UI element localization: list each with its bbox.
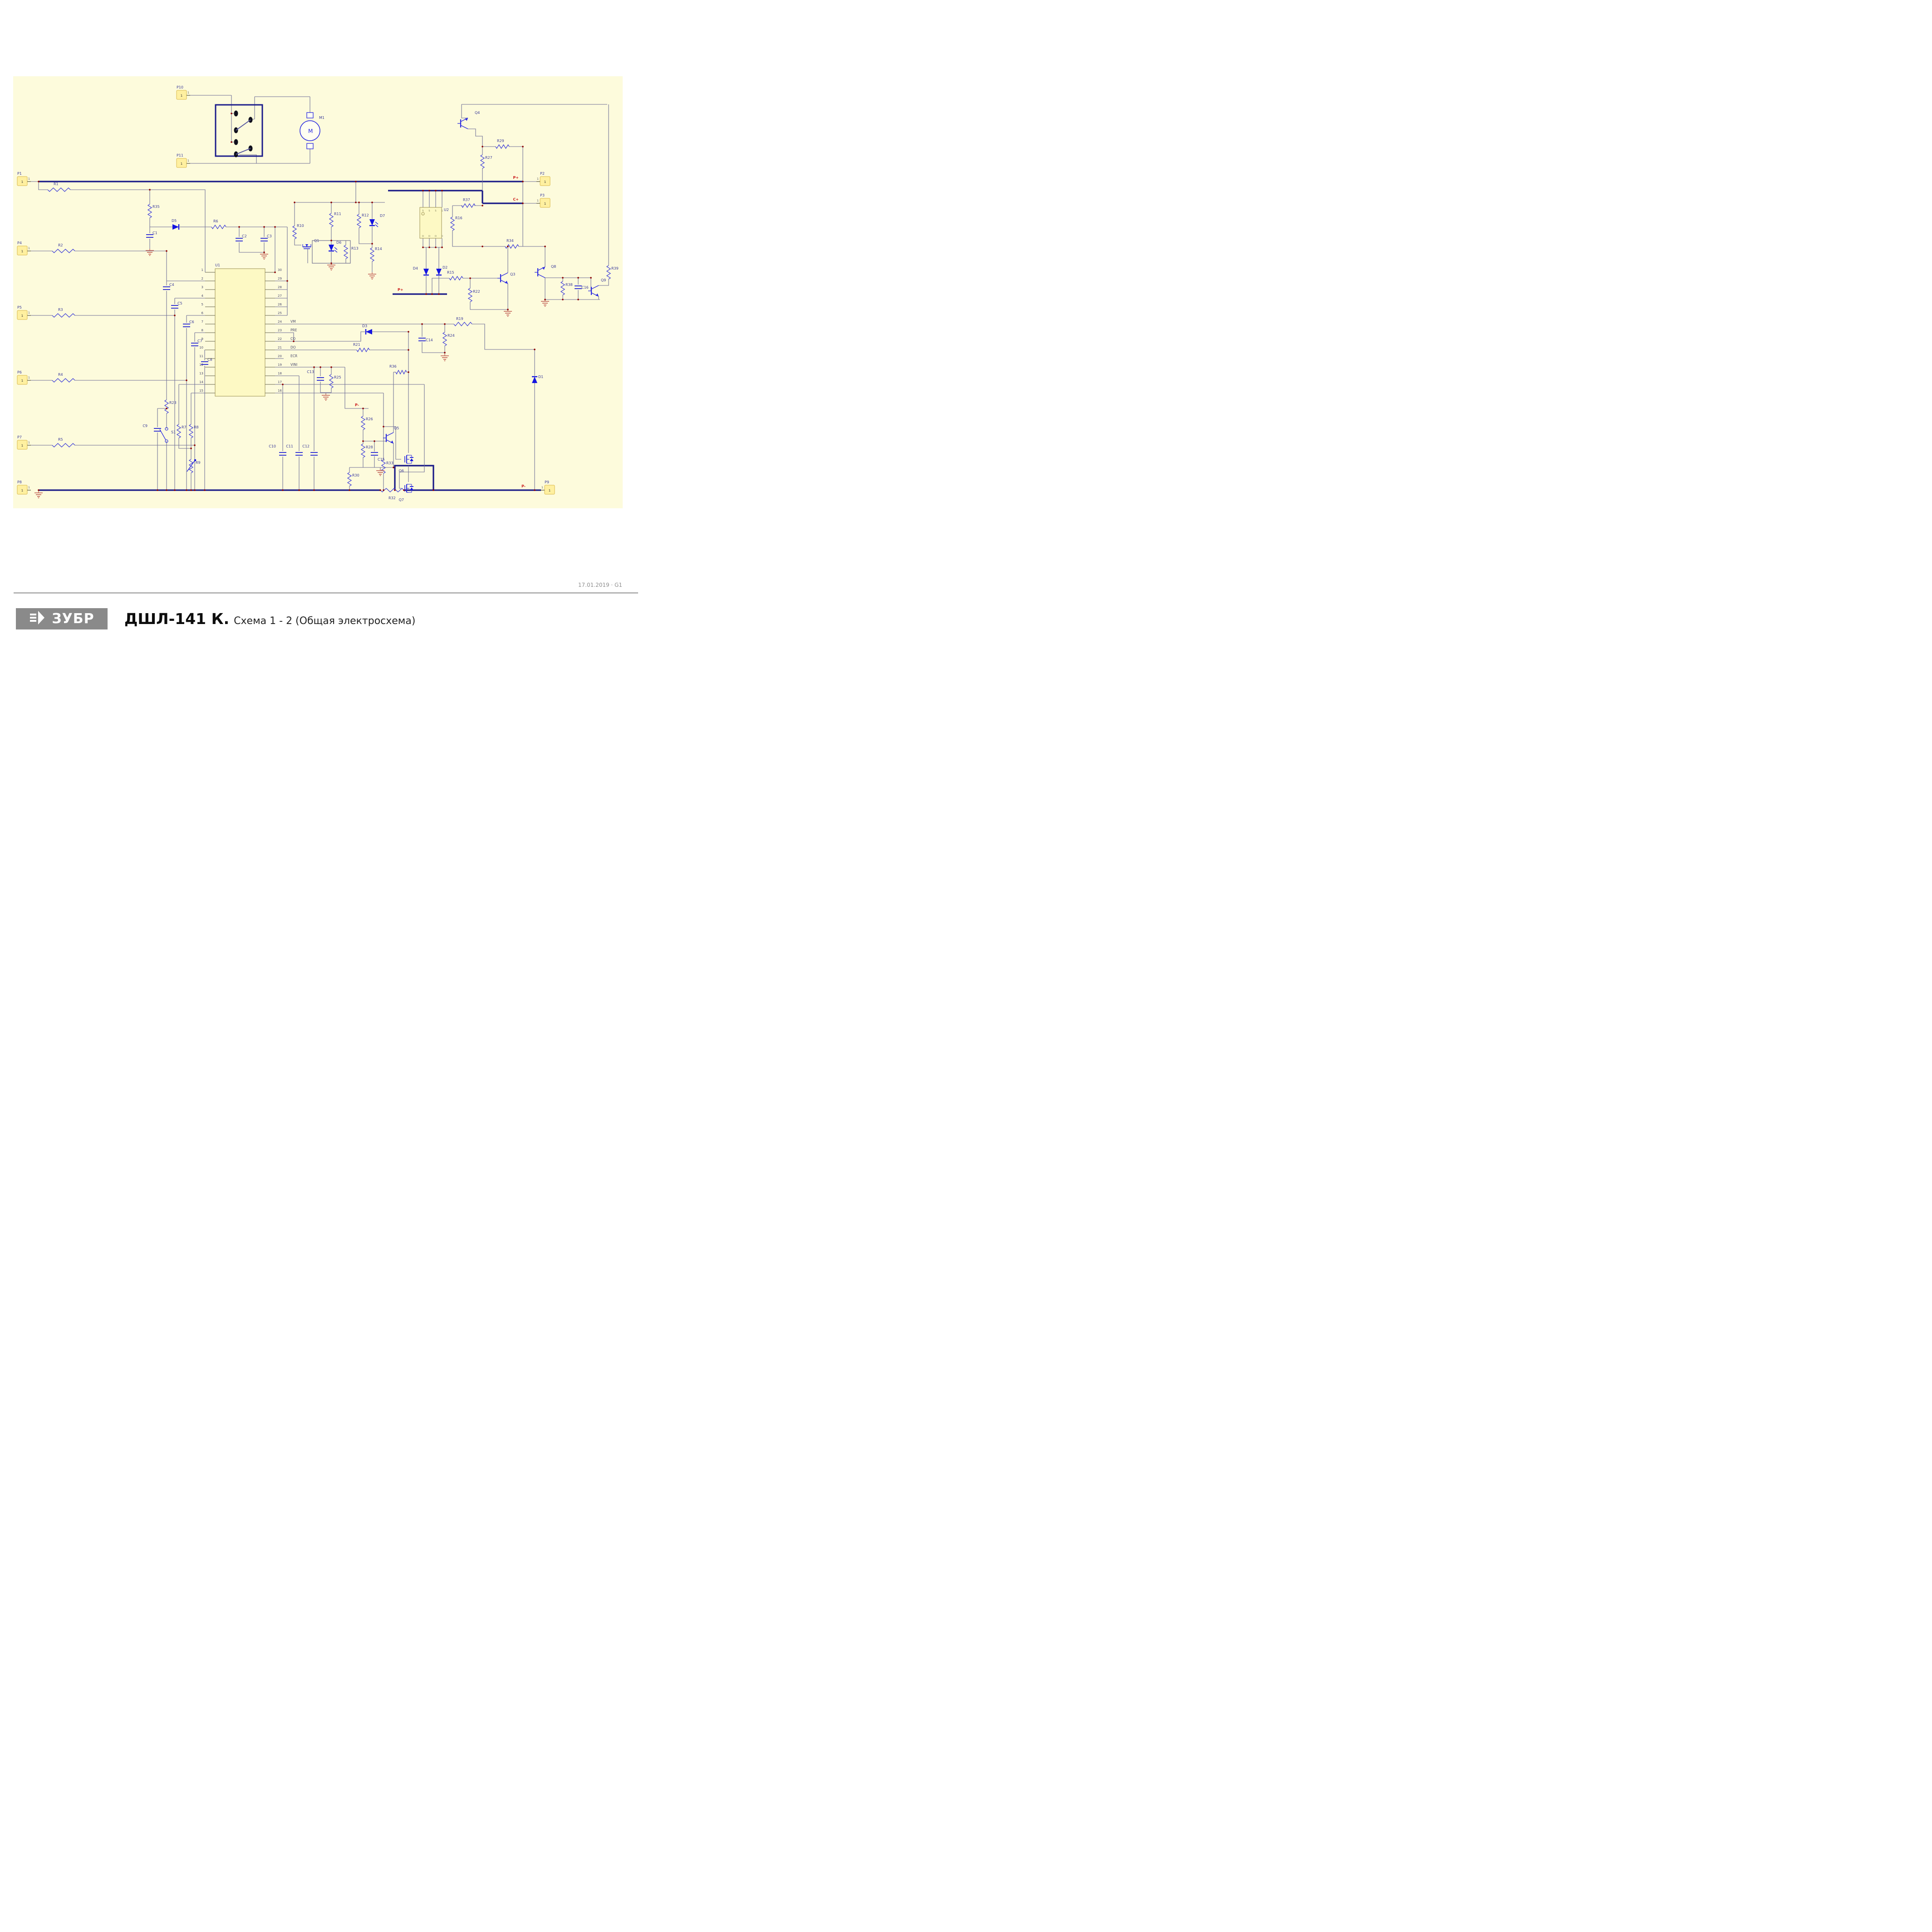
junction-dot <box>263 226 265 228</box>
ic-pin-number: 18 <box>278 372 282 375</box>
junction-dot <box>174 489 176 491</box>
junction-dot <box>166 408 167 409</box>
resistor-label: R13 <box>351 246 359 251</box>
junction-dot <box>186 379 187 381</box>
resistor-label: R35 <box>152 205 160 209</box>
junction-dot <box>441 246 443 248</box>
junction-dot <box>355 181 357 182</box>
capacitor-label: C2 <box>242 234 247 238</box>
motor-label: M1 <box>319 116 324 120</box>
ic-pin-name: D <box>441 235 443 238</box>
junction-dot <box>444 323 446 325</box>
capacitor-label: C13 <box>307 370 314 374</box>
connector-label: P3 <box>540 193 545 197</box>
resistor-label: R10 <box>297 224 304 228</box>
resistor-label: R16 <box>455 216 462 220</box>
junction-dot <box>294 202 295 203</box>
ic-pin-number: 5 <box>202 303 203 306</box>
power-net-label: P- <box>521 484 526 488</box>
junction-dot <box>408 331 409 333</box>
resistor-label: R34 <box>506 239 514 243</box>
junction-dot <box>421 323 423 325</box>
ic-pin-name: D <box>422 235 424 238</box>
junction-dot <box>403 489 405 491</box>
junction-dot <box>431 293 433 295</box>
ic-pin-name: CO <box>290 337 295 341</box>
junction-dot <box>383 426 384 428</box>
junction-dot <box>534 349 536 350</box>
ic-pin-number: 26 <box>278 303 282 306</box>
junction-dot <box>441 190 443 192</box>
diode-label: D3 <box>362 324 367 328</box>
doc-subtitle: Схема 1 - 2 (Общая электросхема) <box>234 615 415 627</box>
capacitor-label: C1 <box>152 231 157 235</box>
resistor-label: R22 <box>473 290 480 294</box>
ic-pin-number: 10 <box>199 346 203 349</box>
ic-pin-number: 13 <box>199 372 203 375</box>
capacitor-label: C4 <box>169 283 174 287</box>
ic-pin-number: 4 <box>202 294 204 298</box>
capacitor-label: C8 <box>207 358 212 362</box>
junction-dot <box>394 489 396 491</box>
connector-label: P4 <box>17 241 22 245</box>
junction-dot <box>190 447 192 449</box>
ic-pin-number: 17 <box>278 380 282 384</box>
junction-dot <box>435 190 437 192</box>
connector-pin-number: 1 <box>549 489 551 492</box>
capacitor-label: C3 <box>267 234 272 238</box>
junction-dot <box>313 489 315 491</box>
junction-dot <box>522 146 524 147</box>
ic-pin-number: 21 <box>278 346 282 349</box>
connector-pin-number: 1 <box>21 250 23 253</box>
brand-arrow-icon <box>29 610 50 628</box>
connector-pin-number: 1 <box>544 202 546 206</box>
connector-label: P9 <box>545 480 549 484</box>
junction-dot <box>422 190 424 192</box>
power-net-label: P+ <box>398 288 403 292</box>
transistor-label: Q3 <box>510 272 515 276</box>
junction-dot <box>408 371 409 373</box>
connector-label: P7 <box>17 435 22 439</box>
junction-dot <box>204 489 206 491</box>
junction-dot <box>438 293 440 295</box>
junction-dot <box>38 181 39 182</box>
ic-pin-number: 19 <box>278 363 282 367</box>
ic-pin-number: 16 <box>278 389 282 393</box>
ic-pin-name: VINI <box>290 363 297 367</box>
junction-dot <box>408 349 409 351</box>
junction-dot <box>194 489 196 491</box>
diode-label: D4 <box>413 266 418 270</box>
junction-dot <box>362 408 364 409</box>
connector-pin-number: 1 <box>21 379 23 383</box>
resistor-label: R15 <box>447 270 454 275</box>
resistor-label: R26 <box>366 417 373 421</box>
resistor-label: R4 <box>58 373 63 377</box>
motor-terminal <box>307 113 313 118</box>
diode-label: D2 <box>442 265 447 270</box>
junction-dot <box>274 271 276 273</box>
ic-pin-name: S <box>428 210 430 212</box>
junction-dot <box>522 202 524 204</box>
resistor-label: R21 <box>353 343 360 347</box>
ic-pin-number: 1 <box>202 268 203 272</box>
junction-dot <box>190 489 192 491</box>
ic-pin-number: 3 <box>202 285 203 289</box>
junction-dot <box>534 489 536 491</box>
junction-dot <box>544 246 546 247</box>
junction-dot <box>330 202 332 203</box>
junction-dot <box>590 277 592 279</box>
ic-pin-number: 6 <box>202 311 204 315</box>
junction-dot <box>231 141 232 143</box>
transistor-label: Q9 <box>601 278 606 282</box>
resistor-label: R7 <box>182 425 187 429</box>
connector-stub-pin: 1 <box>537 177 539 181</box>
junction-dot <box>149 189 151 191</box>
junction-dot <box>371 243 373 245</box>
ic-pin-name: S <box>435 210 436 212</box>
resistor-label: R29 <box>497 139 504 143</box>
diode-label: D7 <box>380 214 385 218</box>
ic-pin-number: 28 <box>278 285 282 289</box>
resistor-label: R36 <box>389 364 397 369</box>
ic-pin-name: VM <box>290 320 296 324</box>
capacitor-label: C15 <box>378 457 385 462</box>
junction-dot <box>444 352 446 354</box>
resistor-label: R11 <box>334 212 341 216</box>
ic-pin-number: 11 <box>199 354 203 358</box>
diode-label: D1 <box>538 375 543 379</box>
capacitor-label: C10 <box>269 444 276 448</box>
junction-dot <box>238 226 240 228</box>
power-net-label: C+ <box>513 197 519 202</box>
junction-dot <box>433 489 434 491</box>
ic-pin-name: DO <box>290 345 296 349</box>
junction-dot <box>293 340 295 342</box>
capacitor-label: C11 <box>286 444 293 448</box>
connector-stub-pin: 1 <box>28 376 30 379</box>
junction-dot <box>330 366 332 368</box>
resistor-label: R2 <box>58 243 63 247</box>
junction-dot <box>320 366 321 368</box>
resistor-label: R32 <box>388 496 396 500</box>
junction-dot <box>355 202 357 203</box>
resistor-label: R25 <box>334 375 341 379</box>
junction-dot <box>469 277 471 279</box>
ic-pin-name: S <box>422 210 423 212</box>
ic-body <box>215 269 265 396</box>
ic-pin-number: 7 <box>202 320 203 324</box>
resistor-label: R14 <box>375 247 382 251</box>
junction-dot <box>282 489 284 491</box>
connector-label: P2 <box>540 172 545 176</box>
capacitor-label: C12 <box>302 444 310 448</box>
ic-pin-number: 15 <box>199 389 203 393</box>
ic-label: U1 <box>215 263 220 267</box>
resistor-label: R3 <box>58 308 63 312</box>
resistor-label: R39 <box>611 266 619 270</box>
capacitor-label: C6 <box>189 320 194 324</box>
junction-dot <box>274 226 276 228</box>
switch-label: S1 <box>171 430 176 434</box>
connector-label: P1 <box>17 172 22 176</box>
connector-pin-number: 1 <box>21 314 23 318</box>
junction-dot <box>482 205 483 206</box>
resistor-label: R19 <box>456 317 463 321</box>
connector-pin-number: 1 <box>21 444 23 447</box>
footer: ЗУБР ДШЛ-141 К. Схема 1 - 2 (Общая элект… <box>16 608 415 629</box>
junction-dot <box>371 202 373 203</box>
junction-dot <box>362 440 364 442</box>
ic-pin-name: D <box>428 235 430 238</box>
junction-dot <box>374 440 375 442</box>
connector-label: P10 <box>177 85 183 89</box>
resistor-label: R5 <box>58 438 63 442</box>
connector-pin-number: 1 <box>21 180 23 184</box>
connector-stub-pin: 1 <box>28 177 30 181</box>
connector-stub-pin: 1 <box>28 246 30 250</box>
connector-pin-number: 1 <box>181 162 182 166</box>
doc-title: ДШЛ-141 К. <box>124 610 229 628</box>
connector-stub-pin: 1 <box>187 91 189 94</box>
resistor-label: R27 <box>485 156 492 160</box>
resistor-label: R8 <box>194 425 199 429</box>
resistor-label: R1 <box>54 182 59 186</box>
ic-pin-name: D <box>435 235 437 238</box>
schematic-canvas: P111P411P511P611P711P811P1011P1111P211P3… <box>0 0 644 644</box>
connector-pin-number: 1 <box>181 94 182 98</box>
connector-label: P11 <box>177 153 183 157</box>
junction-dot <box>577 277 579 279</box>
ic-pin-number: 12 <box>199 363 203 367</box>
page: P111P411P511P611P711P811P1011P1111P211P3… <box>0 0 644 644</box>
connector-stub-pin: 1 <box>537 199 539 202</box>
capacitor-label: C16 <box>581 285 589 290</box>
ic-pin-name: G <box>441 210 443 212</box>
switch-contact <box>234 139 238 145</box>
junction-dot <box>507 246 509 247</box>
junction-dot <box>544 299 546 300</box>
ic-U1 <box>205 269 275 396</box>
motor-terminal <box>307 143 313 149</box>
ic-pin-number: 20 <box>278 354 282 358</box>
resistor-label: R6 <box>213 219 218 223</box>
resistor-label: R12 <box>362 213 369 217</box>
junction-dot <box>282 383 284 385</box>
junction-dot <box>383 489 384 491</box>
connector-label: P5 <box>17 305 22 310</box>
junction-dot <box>349 489 350 491</box>
junction-dot <box>562 299 564 300</box>
junction-dot <box>231 113 232 114</box>
power-net-label: P+ <box>513 176 519 180</box>
diode-label: D6 <box>336 241 341 245</box>
ic-pin-number: 23 <box>278 329 282 332</box>
resistor-label: R9 <box>196 461 201 465</box>
junction-dot <box>522 181 524 182</box>
junction-dot <box>174 315 176 316</box>
junction-dot <box>422 246 424 248</box>
connector-pin-number: 1 <box>544 180 546 184</box>
switch-contact <box>234 111 238 117</box>
ic-pin-number: 24 <box>278 320 282 324</box>
footer-rule <box>14 593 638 593</box>
brand-logo: ЗУБР <box>16 608 108 629</box>
junction-dot <box>577 299 579 300</box>
diode-label: D5 <box>172 219 177 223</box>
ic-pin-number: 22 <box>278 337 282 341</box>
capacitor-label: C9 <box>143 424 147 428</box>
resistor-label: R30 <box>352 473 359 477</box>
connector-stub-pin: 1 <box>28 486 30 489</box>
junction-dot <box>157 489 158 491</box>
ic-pin-name: ECR <box>290 354 297 358</box>
resistor-label: R37 <box>463 198 470 202</box>
mosfet-label: Q7 <box>399 498 404 502</box>
junction-dot <box>562 277 564 279</box>
resistor-label: R38 <box>565 283 573 287</box>
ic-pin-number: 27 <box>278 294 282 298</box>
connector-stub-pin: 1 <box>187 159 189 162</box>
junction-dot <box>428 246 430 248</box>
transistor-label: Q8 <box>551 265 556 269</box>
resistor-label: R28 <box>366 445 373 449</box>
junction-dot <box>482 146 483 147</box>
transistor-label: Q4 <box>475 111 480 115</box>
ic-pin-number: 2 <box>202 277 203 280</box>
junction-dot <box>166 250 167 252</box>
connector-stub-pin: 1 <box>28 441 30 444</box>
junction-dot <box>38 489 39 491</box>
junction-dot <box>298 489 300 491</box>
ic-pin-number: 30 <box>278 268 282 272</box>
schematic-sheet <box>13 76 623 508</box>
pot-arrow-tip <box>194 459 196 461</box>
junction-dot <box>482 246 483 247</box>
junction-dot <box>379 489 381 491</box>
power-net-label: P- <box>355 403 359 407</box>
ic-label: U2 <box>444 208 449 212</box>
connector-stub-pin: 1 <box>28 311 30 315</box>
connector-stub-pin: 1 <box>541 486 543 489</box>
junction-dot <box>358 202 360 203</box>
junction-dot <box>286 280 288 282</box>
connector-label: P6 <box>17 370 22 374</box>
junction-dot <box>330 240 332 241</box>
junction-dot <box>393 467 394 468</box>
junction-dot <box>194 444 196 446</box>
ic-pin-number: 14 <box>199 380 203 384</box>
resistor-label: R23 <box>169 401 177 405</box>
ic-pin-number: 8 <box>202 329 203 332</box>
resistor-label: R33 <box>386 461 393 465</box>
junction-dot <box>428 190 430 192</box>
capacitor-label: C14 <box>426 338 433 342</box>
connector-pin-number: 1 <box>21 489 23 492</box>
ic-pin-name: PRE <box>290 328 297 332</box>
ic-pin-number: 29 <box>278 277 282 280</box>
junction-dot <box>507 309 509 310</box>
junction-dot <box>330 262 332 264</box>
capacitor-label: C5 <box>177 301 182 305</box>
brand-name: ЗУБР <box>52 611 94 627</box>
junction-dot <box>313 366 315 368</box>
junction-dot <box>186 489 187 491</box>
resistor-label: R24 <box>447 334 455 338</box>
junction-dot <box>425 293 427 295</box>
junction-dot <box>263 251 265 253</box>
ic-pin-number: 25 <box>278 311 282 315</box>
junction-dot <box>166 489 167 491</box>
mosfet-label: Q6 <box>399 469 404 473</box>
connector-label: P8 <box>17 480 22 484</box>
date-revision: 17.01.2019 · G1 <box>0 582 622 588</box>
motor-symbol: M <box>308 128 313 134</box>
junction-dot <box>435 246 437 248</box>
transistor-label: Q5 <box>394 426 399 430</box>
ic-pin-number: 9 <box>202 337 203 341</box>
